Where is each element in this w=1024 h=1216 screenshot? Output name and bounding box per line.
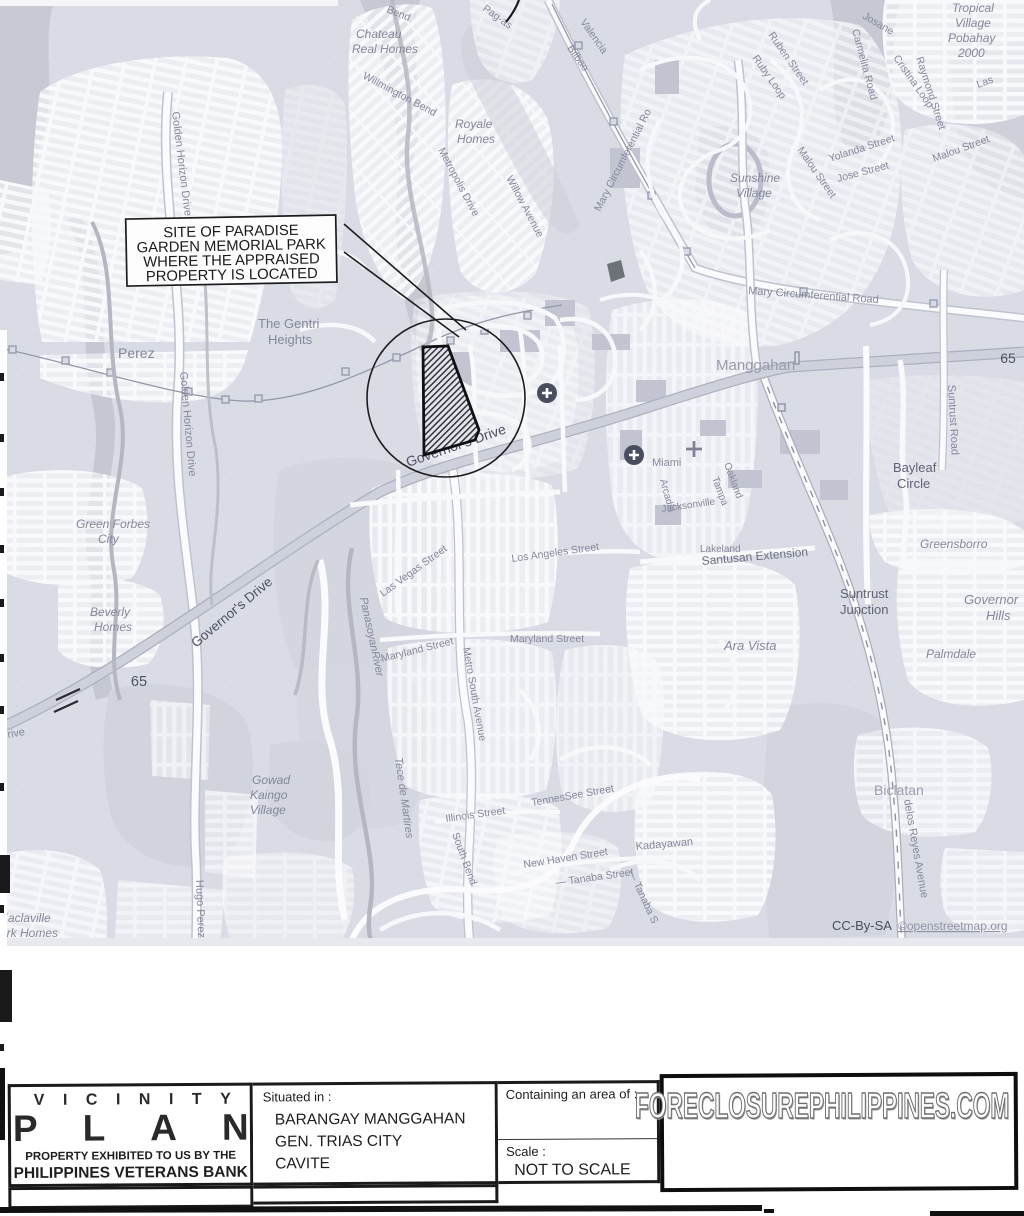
svg-text:65: 65 [131, 674, 147, 690]
svg-text:Gowad: Gowad [252, 773, 290, 787]
svg-text:©openstreetmap.org: ©openstreetmap.org [898, 919, 1008, 933]
svg-text:Perez: Perez [118, 345, 155, 361]
svg-text:Maryland Street: Maryland Street [510, 633, 584, 645]
svg-text:Governor: Governor [964, 592, 1019, 607]
svg-text:Homes: Homes [94, 620, 132, 634]
svg-text:ark Homes: ark Homes [0, 926, 58, 940]
svg-text:Green Forbes: Green Forbes [76, 517, 150, 531]
svg-text:Chateau: Chateau [356, 27, 402, 41]
svg-text:Greensborro: Greensborro [920, 537, 988, 551]
svg-text:Village: Village [955, 16, 991, 30]
svg-text:PROPERTY IS LOCATED: PROPERTY IS LOCATED [146, 266, 318, 285]
svg-text:Beverly: Beverly [90, 605, 131, 619]
svg-text:Kaclaville: Kaclaville [0, 911, 51, 925]
svg-text:Ara Vista: Ara Vista [723, 638, 777, 653]
svg-text:Circle: Circle [897, 476, 930, 491]
svg-text:Biclatan: Biclatan [874, 782, 924, 798]
svg-text:Royale: Royale [455, 117, 493, 131]
svg-text:Palmdale: Palmdale [926, 647, 976, 661]
svg-text:Hugo Perez: Hugo Perez [193, 880, 207, 938]
svg-text:Homes: Homes [457, 132, 495, 146]
svg-text:City: City [98, 532, 120, 546]
svg-text:Pobahay: Pobahay [948, 31, 996, 45]
svg-text:Bayleaf: Bayleaf [893, 460, 937, 475]
svg-text:Sunshine: Sunshine [730, 171, 780, 185]
svg-text:Miami: Miami [652, 457, 681, 469]
svg-text:Junction: Junction [840, 602, 888, 617]
svg-text:Suntrust: Suntrust [840, 586, 889, 601]
svg-text:65: 65 [1000, 350, 1016, 366]
svg-text:Tropical: Tropical [952, 1, 994, 15]
svg-text:Hills: Hills [986, 608, 1011, 623]
svg-text:Real Homes: Real Homes [352, 42, 418, 56]
svg-text:Heights: Heights [268, 332, 313, 347]
svg-text:Village: Village [250, 803, 286, 817]
svg-text:2000: 2000 [957, 46, 985, 60]
svg-text:Manggahan: Manggahan [716, 357, 795, 374]
svg-text:Village: Village [736, 186, 772, 200]
svg-text:Kaingo: Kaingo [250, 788, 288, 802]
svg-text:CC-By-SA: CC-By-SA [832, 918, 892, 933]
svg-text:The Gentri: The Gentri [258, 316, 320, 331]
